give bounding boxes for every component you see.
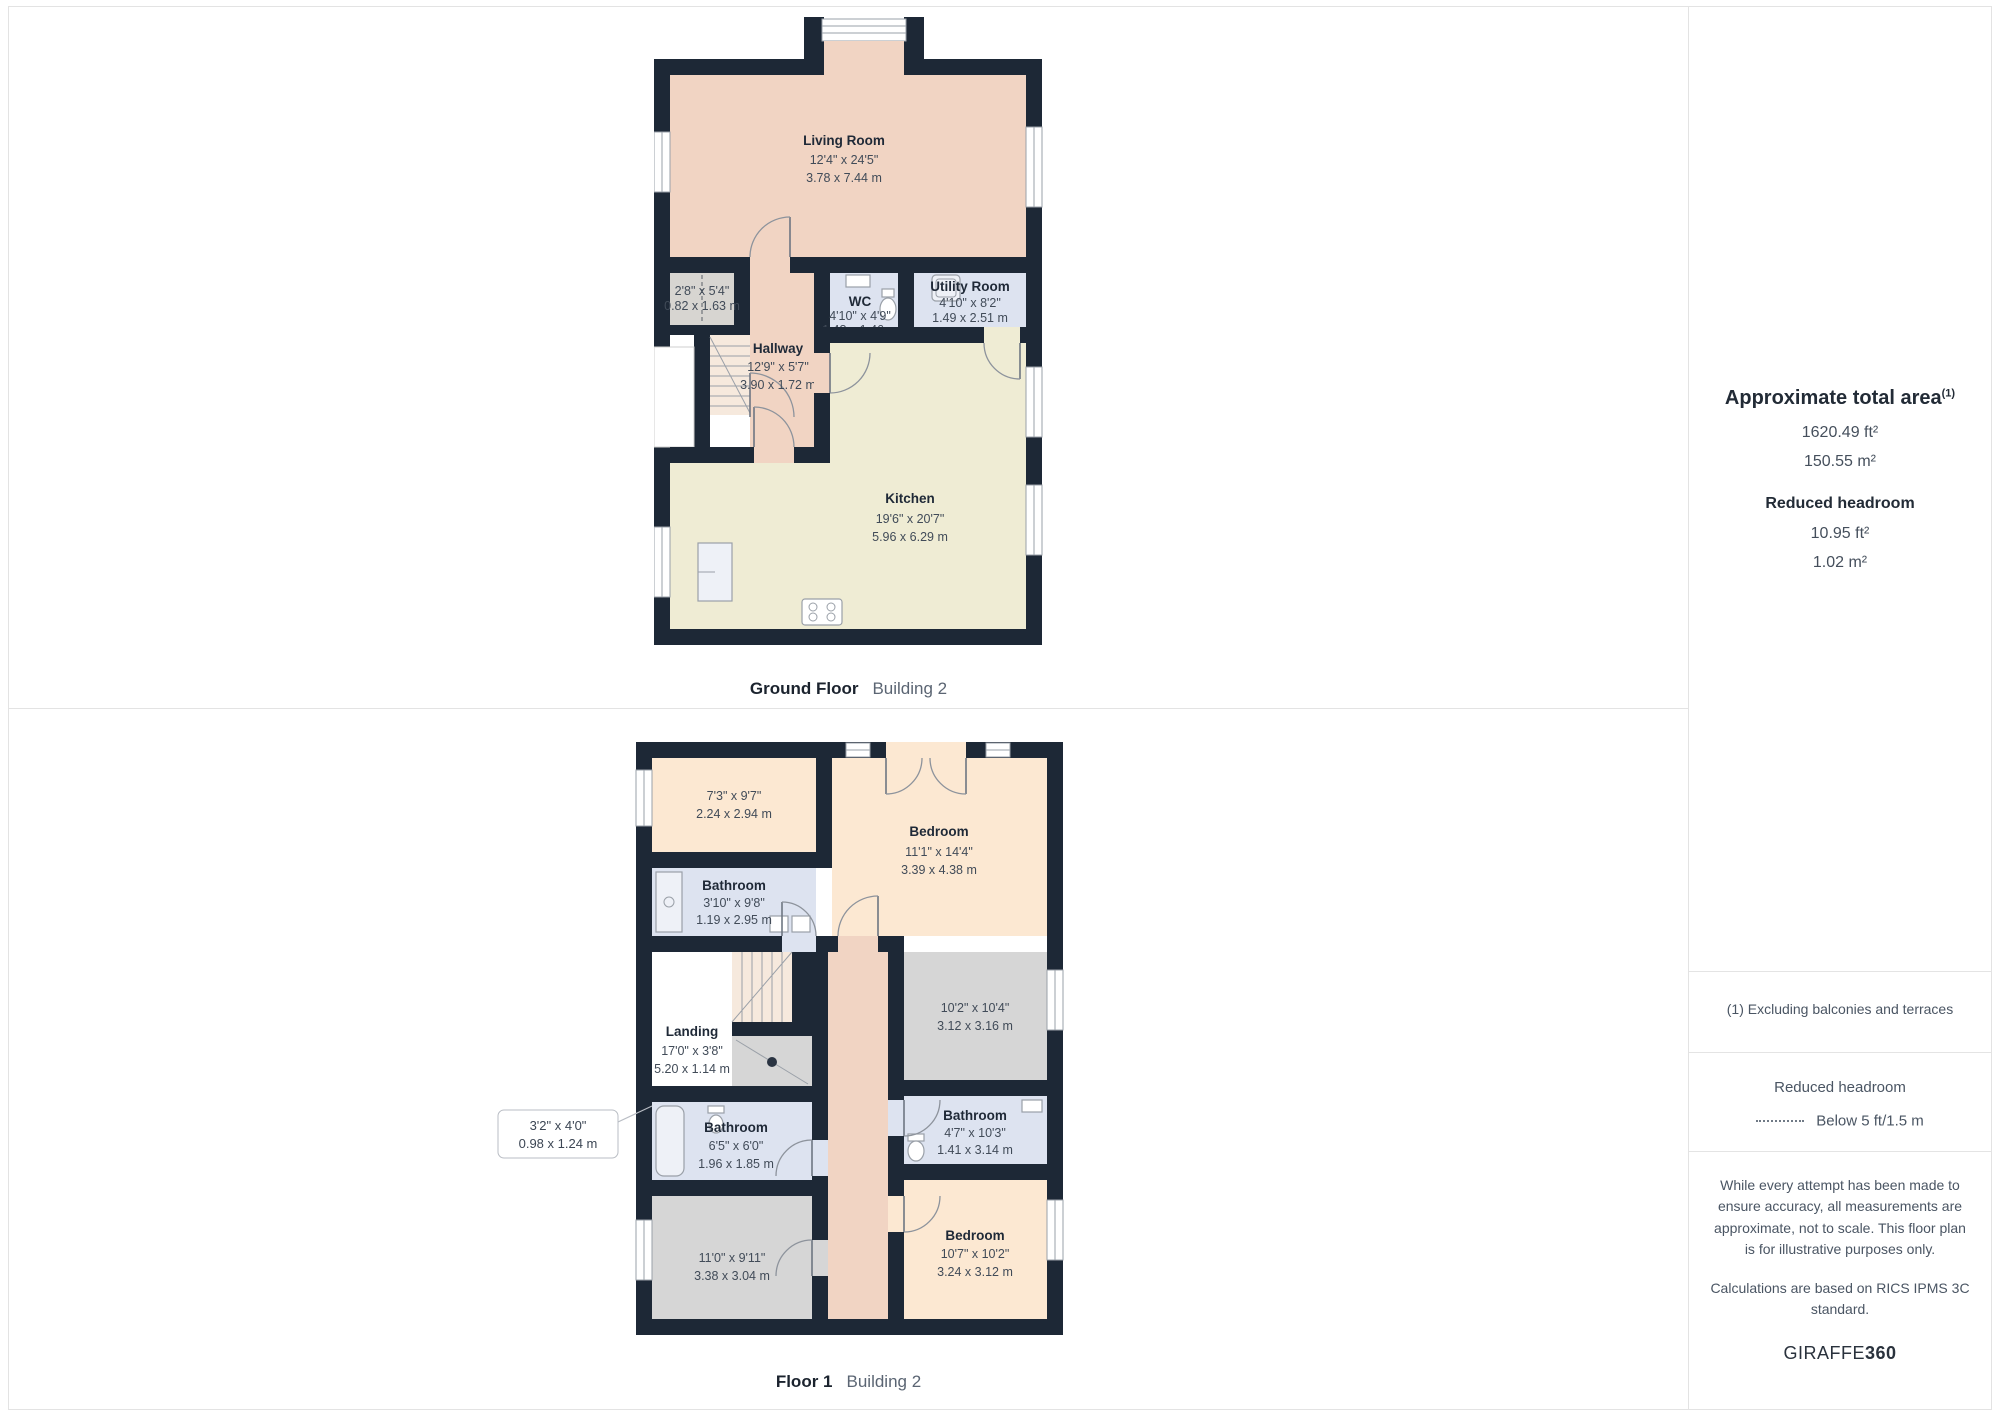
corridor [828, 952, 888, 1319]
bathroom2-m: 1.96 x 1.85 m [698, 1157, 774, 1171]
total-area-title: Approximate total area(1) [1689, 387, 1991, 410]
room-c-ft: 11'0" x 9'11" [699, 1251, 766, 1265]
ground-floor-plan: Living Room 12'4" x 24'5" 3.78 x 7.44 m … [654, 17, 1044, 647]
bedroom1-name: Bedroom [909, 824, 968, 839]
giraffe360-logo: GIRAFFE360 [1709, 1343, 1971, 1364]
legend: Reduced headroom Below 5 ft/1.5 m [1689, 1079, 1991, 1130]
disclaimer-text-1: While every attempt has been made to ens… [1709, 1175, 1971, 1260]
landing-ft: 17'0" x 3'8" [661, 1044, 723, 1058]
bedroom1-ft: 11'1" x 14'4" [905, 845, 973, 859]
ground-floor-label: Ground FloorBuilding 2 [9, 679, 1688, 699]
disclaimer-text-2: Calculations are based on RICS IPMS 3C s… [1709, 1278, 1971, 1321]
room-a-ft: 7'3" x 9'7" [707, 789, 762, 803]
floorplan-page: Living Room 12'4" x 24'5" 3.78 x 7.44 m … [0, 0, 2000, 1415]
room-living: Living Room 12'4" x 24'5" 3.78 x 7.44 m [654, 75, 1042, 273]
room-c-m: 3.38 x 3.04 m [694, 1269, 770, 1283]
bathroom2-name: Bathroom [704, 1120, 768, 1135]
landing-m: 5.20 x 1.14 m [654, 1062, 730, 1076]
floor1-building: Building 2 [847, 1372, 922, 1391]
bedroom1-m: 3.39 x 4.38 m [901, 863, 977, 877]
disclaimer: While every attempt has been made to ens… [1709, 1175, 1971, 1364]
room-bedroom1: Bedroom 11'1" x 14'4" 3.39 x 4.38 m [832, 742, 1047, 952]
room-bathroom2: Bathroom 6'5" x 6'0" 1.96 x 1.85 m [652, 1102, 828, 1180]
bathroom1-m: 1.19 x 2.95 m [696, 913, 772, 927]
callout-ft: 3'2" x 4'0" [530, 1118, 587, 1133]
area-summary: Approximate total area(1) 1620.49 ft² 15… [1689, 387, 1991, 583]
kitchen-ft: 19'6" x 20'7" [876, 512, 945, 526]
callout-m: 0.98 x 1.24 m [519, 1136, 598, 1151]
floor1-name: Floor 1 [776, 1372, 833, 1391]
ground-floor-building: Building 2 [872, 679, 947, 698]
section-divider [9, 708, 1688, 709]
dotted-line-icon [1756, 1120, 1804, 1122]
hallway-m: 3.90 x 1.72 m [740, 378, 816, 392]
bedroom2-ft: 10'7" x 10'2" [941, 1247, 1010, 1261]
utility-name: Utility Room [930, 279, 1010, 294]
hallway-ft: 12'9" x 5'7" [747, 360, 809, 374]
reduced-headroom-ft: 10.95 ft² [1689, 525, 1991, 543]
bathroom3-ft: 4'7" x 10'3" [944, 1126, 1006, 1140]
total-area-ft: 1620.49 ft² [1689, 424, 1991, 442]
utility-ft: 4'10" x 8'2" [939, 296, 1001, 310]
bathroom2-ft: 6'5" x 6'0" [709, 1139, 764, 1153]
room-closet: 2'8" x 5'4" 0.82 x 1.63 m [664, 273, 750, 325]
content-frame: Living Room 12'4" x 24'5" 3.78 x 7.44 m … [8, 6, 1992, 1410]
bathroom3-name: Bathroom [943, 1108, 1007, 1123]
entry-recess [654, 347, 694, 447]
bedroom2-name: Bedroom [945, 1228, 1004, 1243]
room-b: 10'2" x 10'4" 3.12 x 3.16 m [904, 952, 1063, 1080]
bathroom1-name: Bathroom [702, 878, 766, 893]
wc-name: WC [849, 294, 872, 309]
bathroom3-m: 1.41 x 3.14 m [937, 1143, 1013, 1157]
reduced-headroom-title: Reduced headroom [1689, 495, 1991, 513]
dimension-callout: 3'2" x 4'0" 0.98 x 1.24 m [498, 1106, 652, 1158]
sidebar-divider-2 [1689, 1052, 1991, 1053]
living-ft: 12'4" x 24'5" [810, 153, 879, 167]
total-area-m: 150.55 m² [1689, 453, 1991, 471]
room-bathroom3: Bathroom 4'7" x 10'3" 1.41 x 3.14 m [888, 1096, 1047, 1164]
floor1-plan: 7'3" x 9'7" 2.24 x 2.94 m Bedroom 11'1" … [486, 740, 1066, 1340]
landing-name: Landing [666, 1024, 719, 1039]
room-a: 7'3" x 9'7" 2.24 x 2.94 m [636, 758, 816, 852]
room-a-m: 2.24 x 2.94 m [696, 807, 772, 821]
closet-ft: 2'8" x 5'4" [675, 284, 730, 298]
kitchen-name: Kitchen [885, 491, 935, 506]
bathroom1-ft: 3'10" x 9'8" [703, 896, 765, 910]
closet-m: 0.82 x 1.63 m [664, 299, 740, 313]
ground-floor-name: Ground Floor [750, 679, 859, 698]
living-name: Living Room [803, 133, 885, 148]
floor1-label: Floor 1Building 2 [9, 1372, 1688, 1392]
plans-panel: Living Room 12'4" x 24'5" 3.78 x 7.44 m … [9, 7, 1688, 1409]
legend-title: Reduced headroom [1689, 1079, 1991, 1096]
room-utility: Utility Room 4'10" x 8'2" 1.49 x 2.51 m [898, 273, 1026, 327]
wc-ft: 4'10" x 4'9" [829, 309, 891, 323]
sidebar-divider-3 [1689, 1151, 1991, 1152]
bedroom2-m: 3.24 x 3.12 m [937, 1265, 1013, 1279]
utility-m: 1.49 x 2.51 m [932, 311, 1008, 325]
utility-door-opening [984, 327, 1020, 343]
room-c: 11'0" x 9'11" 3.38 x 3.04 m [636, 1196, 828, 1319]
room-bedroom2: Bedroom 10'7" x 10'2" 3.24 x 3.12 m [888, 1180, 1063, 1319]
hallway-name: Hallway [753, 341, 804, 356]
room-b-ft: 10'2" x 10'4" [941, 1001, 1010, 1015]
summary-sidebar: Approximate total area(1) 1620.49 ft² 15… [1689, 7, 1991, 1409]
sidebar-divider-1 [1689, 971, 1991, 972]
room-b-m: 3.12 x 3.16 m [937, 1019, 1013, 1033]
legend-item: Below 5 ft/1.5 m [1816, 1112, 1924, 1129]
living-m: 3.78 x 7.44 m [806, 171, 882, 185]
reduced-headroom-m: 1.02 m² [1689, 554, 1991, 572]
footnote: (1) Excluding balconies and terraces [1689, 1001, 1991, 1017]
kitchen-m: 5.96 x 6.29 m [872, 530, 948, 544]
footnote-marker: (1) [1942, 387, 1955, 399]
room-closet-dot [732, 1036, 812, 1086]
